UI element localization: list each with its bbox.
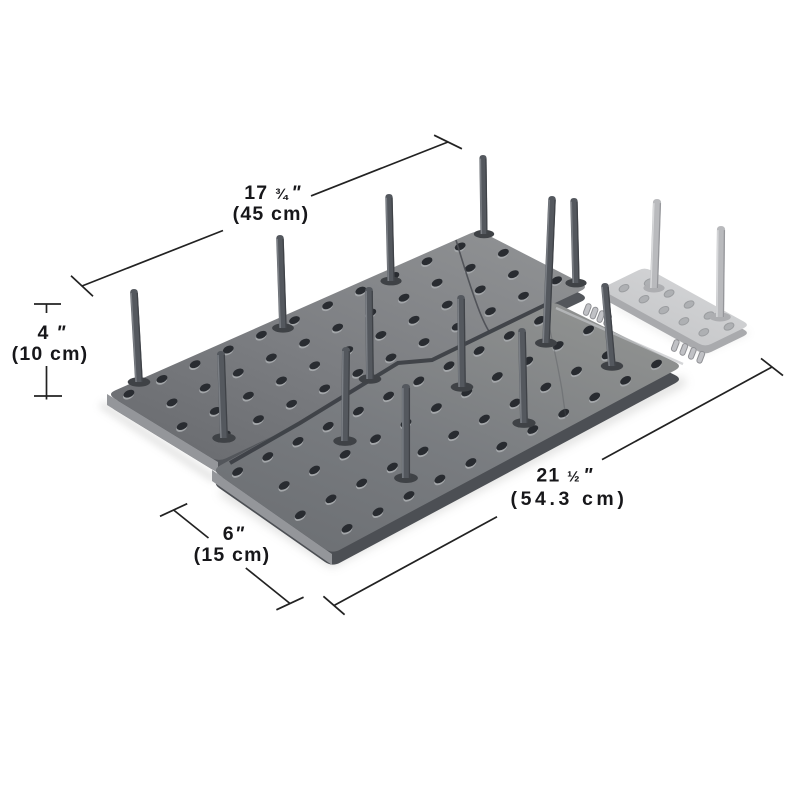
svg-text:6": 6" [223,523,246,545]
svg-text:(15 cm): (15 cm) [194,544,271,566]
svg-text:4 ": 4 " [37,322,66,344]
svg-text:(10 cm): (10 cm) [12,343,89,365]
svg-text:(45 cm): (45 cm) [233,203,310,225]
svg-text:21 ½ ": 21 ½ " [536,465,593,487]
svg-text:(54.3 cm): (54.3 cm) [511,488,628,510]
svg-text:17 ¾ ": 17 ¾ " [244,182,301,204]
